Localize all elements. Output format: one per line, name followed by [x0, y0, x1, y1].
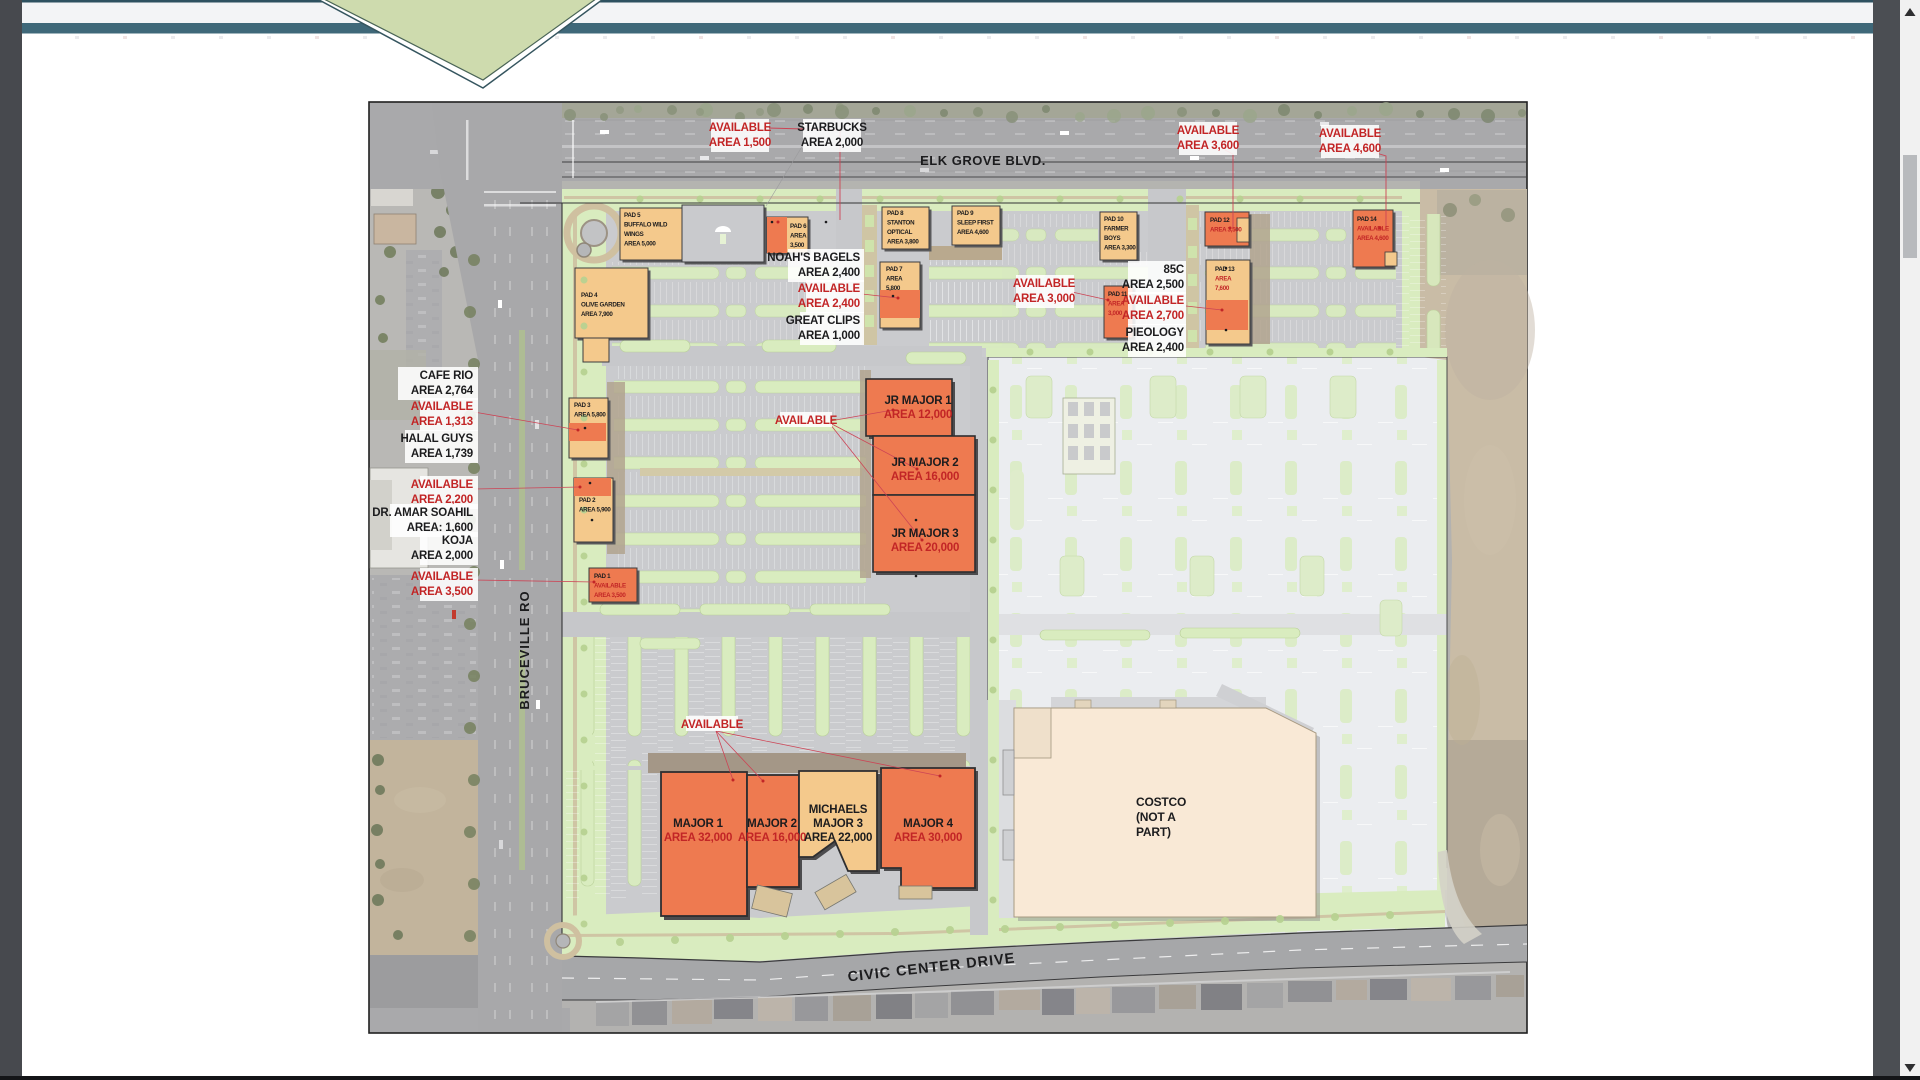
svg-text:AREA: AREA — [1108, 301, 1125, 308]
svg-text:JR MAJOR 1: JR MAJOR 1 — [884, 395, 952, 407]
svg-text:MAJOR 3: MAJOR 3 — [813, 818, 863, 830]
svg-text:STARBUCKS: STARBUCKS — [797, 122, 867, 134]
svg-text:OPTICAL: OPTICAL — [887, 229, 913, 236]
svg-text:AVAILABLE: AVAILABLE — [1177, 125, 1240, 137]
svg-text:PAD 3: PAD 3 — [574, 402, 591, 409]
svg-text:PAD 6: PAD 6 — [790, 223, 807, 230]
svg-text:AREA 16,000: AREA 16,000 — [738, 832, 806, 844]
svg-text:5,800: 5,800 — [886, 285, 901, 292]
svg-text:HALAL GUYS: HALAL GUYS — [400, 433, 473, 445]
svg-text:AREA 3,500: AREA 3,500 — [411, 586, 473, 598]
svg-text:AREA 1,000: AREA 1,000 — [798, 330, 860, 342]
svg-text:AVAILABLE: AVAILABLE — [775, 415, 838, 427]
svg-text:KOJA: KOJA — [442, 535, 473, 547]
svg-text:MAJOR 2: MAJOR 2 — [747, 818, 797, 830]
svg-text:PAD 9: PAD 9 — [957, 210, 974, 217]
svg-text:MAJOR 4: MAJOR 4 — [903, 818, 954, 830]
svg-text:GREAT CLIPS: GREAT CLIPS — [786, 315, 861, 327]
svg-text:AREA 3,600: AREA 3,600 — [1177, 140, 1239, 152]
svg-text:AREA 1,739: AREA 1,739 — [411, 448, 473, 460]
svg-text:PAD 14: PAD 14 — [1357, 216, 1377, 223]
svg-text:AREA 1,313: AREA 1,313 — [411, 416, 473, 428]
svg-text:AREA 2,000: AREA 2,000 — [801, 137, 863, 149]
svg-text:AREA: AREA — [1215, 276, 1232, 283]
svg-text:MICHAELS: MICHAELS — [809, 804, 868, 816]
svg-text:85C: 85C — [1164, 264, 1185, 276]
svg-text:AREA 2,700: AREA 2,700 — [1122, 310, 1184, 322]
svg-text:AREA 7,900: AREA 7,900 — [581, 311, 613, 318]
svg-text:AREA 3,000: AREA 3,000 — [1013, 293, 1075, 305]
svg-text:PAD 4: PAD 4 — [581, 292, 598, 299]
svg-text:AREA 22,000: AREA 22,000 — [804, 832, 872, 844]
svg-text:AREA 1,500: AREA 1,500 — [709, 137, 771, 149]
svg-text:AREA: AREA — [790, 233, 807, 240]
svg-text:AREA 3,300: AREA 3,300 — [1104, 245, 1136, 252]
svg-text:AREA 16,000: AREA 16,000 — [891, 471, 959, 483]
svg-text:PAD 1: PAD 1 — [594, 573, 611, 580]
svg-text:AVAILABLE: AVAILABLE — [594, 583, 626, 590]
svg-text:PAD 2: PAD 2 — [579, 497, 596, 504]
svg-text:WINGS: WINGS — [624, 231, 644, 238]
svg-text:AVAILABLE: AVAILABLE — [798, 283, 861, 295]
svg-text:AREA 30,000: AREA 30,000 — [894, 832, 962, 844]
svg-text:JR MAJOR 3: JR MAJOR 3 — [891, 528, 958, 540]
svg-text:AVAILABLE: AVAILABLE — [411, 401, 474, 413]
svg-text:AREA 2,400: AREA 2,400 — [798, 267, 860, 279]
svg-text:COSTCO: COSTCO — [1136, 795, 1186, 809]
svg-text:AVAILABLE: AVAILABLE — [411, 571, 474, 583]
svg-text:PIEOLOGY: PIEOLOGY — [1126, 327, 1185, 339]
svg-text:AREA 4,600: AREA 4,600 — [1319, 143, 1381, 155]
svg-text:AREA 2,400: AREA 2,400 — [798, 298, 860, 310]
svg-text:AREA 2,500: AREA 2,500 — [1122, 279, 1184, 291]
svg-text:SLEEP FIRST: SLEEP FIRST — [957, 220, 994, 227]
svg-text:PAD 7: PAD 7 — [886, 266, 903, 273]
svg-text:AVAILABLE: AVAILABLE — [1319, 128, 1382, 140]
svg-text:AREA 2,000: AREA 2,000 — [411, 550, 473, 562]
svg-text:AREA: AREA — [886, 276, 903, 283]
svg-text:7,600: 7,600 — [1215, 285, 1230, 292]
svg-text:PAD 12: PAD 12 — [1210, 217, 1230, 224]
svg-text:AVAILABLE: AVAILABLE — [1357, 226, 1389, 233]
svg-text:PAD 11: PAD 11 — [1108, 291, 1128, 298]
svg-text:PAD 8: PAD 8 — [887, 210, 904, 217]
svg-text:STANTON: STANTON — [887, 220, 915, 227]
svg-text:AVAILABLE: AVAILABLE — [411, 479, 474, 491]
svg-text:AREA 32,000: AREA 32,000 — [664, 832, 732, 844]
svg-text:ELK GROVE BLVD.: ELK GROVE BLVD. — [920, 153, 1046, 168]
svg-text:AREA 4,600: AREA 4,600 — [1357, 235, 1389, 242]
svg-text:AREA 2,764: AREA 2,764 — [411, 385, 474, 397]
svg-text:3,500: 3,500 — [790, 242, 805, 249]
svg-text:AREA 3,500: AREA 3,500 — [594, 592, 626, 599]
svg-text:OLIVE GARDEN: OLIVE GARDEN — [581, 302, 625, 309]
svg-text:JR MAJOR 2: JR MAJOR 2 — [891, 457, 958, 469]
svg-text:PAD 10: PAD 10 — [1104, 216, 1124, 223]
svg-text:AREA 5,000: AREA 5,000 — [624, 241, 656, 248]
svg-text:AREA 12,000: AREA 12,000 — [884, 409, 952, 421]
svg-text:AREA 20,000: AREA 20,000 — [891, 542, 959, 554]
svg-text:3,000: 3,000 — [1108, 310, 1123, 317]
svg-text:BRUCEVILLE RO: BRUCEVILLE RO — [517, 590, 532, 709]
svg-text:AVAILABLE: AVAILABLE — [709, 122, 772, 134]
svg-text:AVAILABLE: AVAILABLE — [681, 719, 744, 731]
svg-text:AVAILABLE: AVAILABLE — [1013, 278, 1076, 290]
svg-text:PAD 5: PAD 5 — [624, 212, 641, 219]
svg-text:MAJOR 1: MAJOR 1 — [673, 818, 724, 830]
svg-text:(NOT A: (NOT A — [1136, 810, 1176, 824]
svg-text:FARMER: FARMER — [1104, 226, 1129, 233]
svg-text:AREA 5,900: AREA 5,900 — [579, 507, 611, 514]
svg-text:AREA 5,800: AREA 5,800 — [574, 412, 606, 419]
svg-text:BOYS: BOYS — [1104, 235, 1121, 242]
svg-text:AVAILABLE: AVAILABLE — [1122, 295, 1185, 307]
svg-text:AREA 4,600: AREA 4,600 — [957, 229, 989, 236]
svg-text:NOAH'S BAGELS: NOAH'S BAGELS — [767, 252, 860, 264]
svg-text:PART): PART) — [1136, 825, 1171, 839]
svg-text:BUFFALO WILD: BUFFALO WILD — [624, 222, 668, 229]
svg-text:DR. AMAR SOAHIL: DR. AMAR SOAHIL — [372, 507, 473, 519]
svg-text:AREA 3,500: AREA 3,500 — [1210, 227, 1242, 234]
svg-text:AREA 3,800: AREA 3,800 — [887, 239, 919, 246]
svg-text:AREA 2,400: AREA 2,400 — [1122, 342, 1184, 354]
svg-text:CAFE RIO: CAFE RIO — [420, 370, 474, 382]
